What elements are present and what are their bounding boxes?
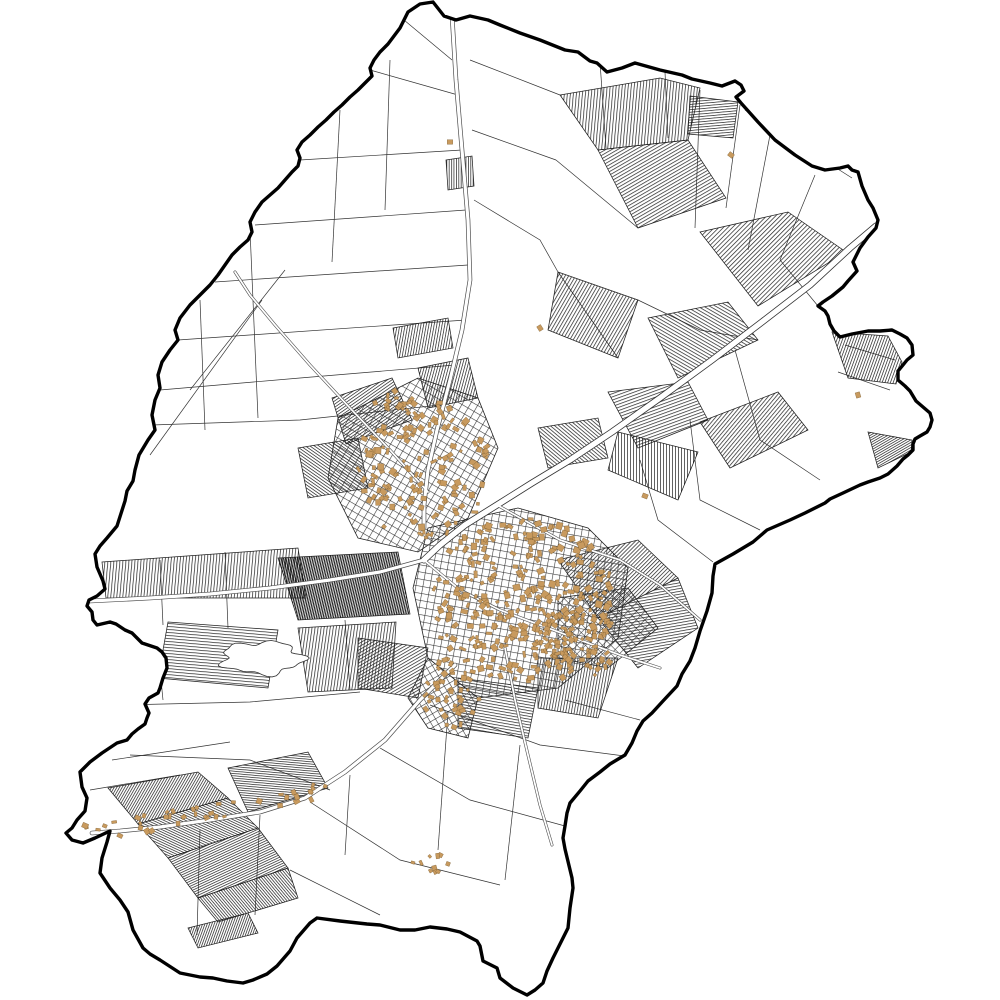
map-interior — [81, 15, 912, 948]
cadastral-map — [0, 0, 1000, 1000]
map-svg — [0, 0, 1000, 1000]
